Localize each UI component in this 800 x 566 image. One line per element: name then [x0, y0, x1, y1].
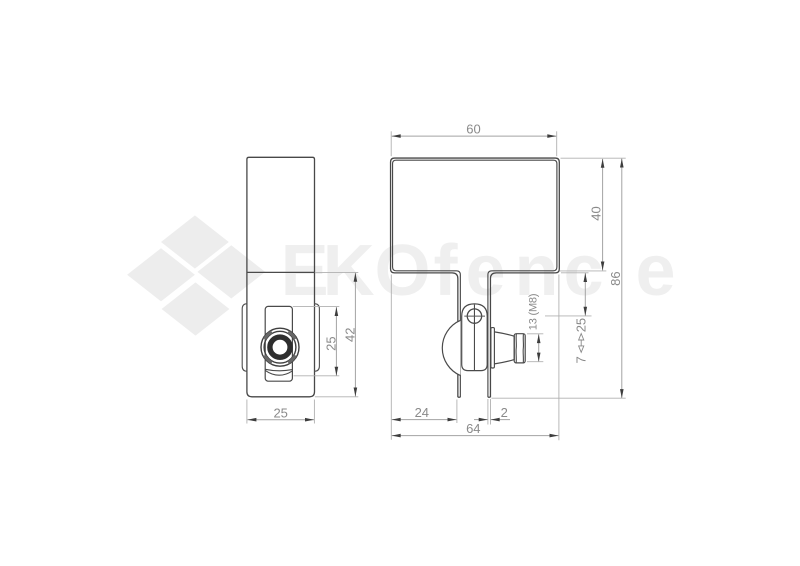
svg-text:64: 64 — [466, 421, 480, 436]
svg-text:86: 86 — [608, 271, 623, 285]
svg-text:7: 7 — [573, 356, 588, 363]
svg-text:25: 25 — [324, 336, 339, 350]
svg-text:25: 25 — [573, 318, 588, 332]
svg-text:24: 24 — [415, 405, 429, 420]
svg-text:42: 42 — [343, 328, 358, 342]
svg-text:EKOfence: EKOfence — [281, 231, 676, 311]
svg-text:25: 25 — [273, 405, 287, 420]
svg-text:40: 40 — [589, 206, 604, 220]
svg-text:2: 2 — [501, 405, 508, 420]
svg-text:60: 60 — [466, 122, 480, 137]
svg-text:13 (M8): 13 (M8) — [527, 294, 539, 331]
